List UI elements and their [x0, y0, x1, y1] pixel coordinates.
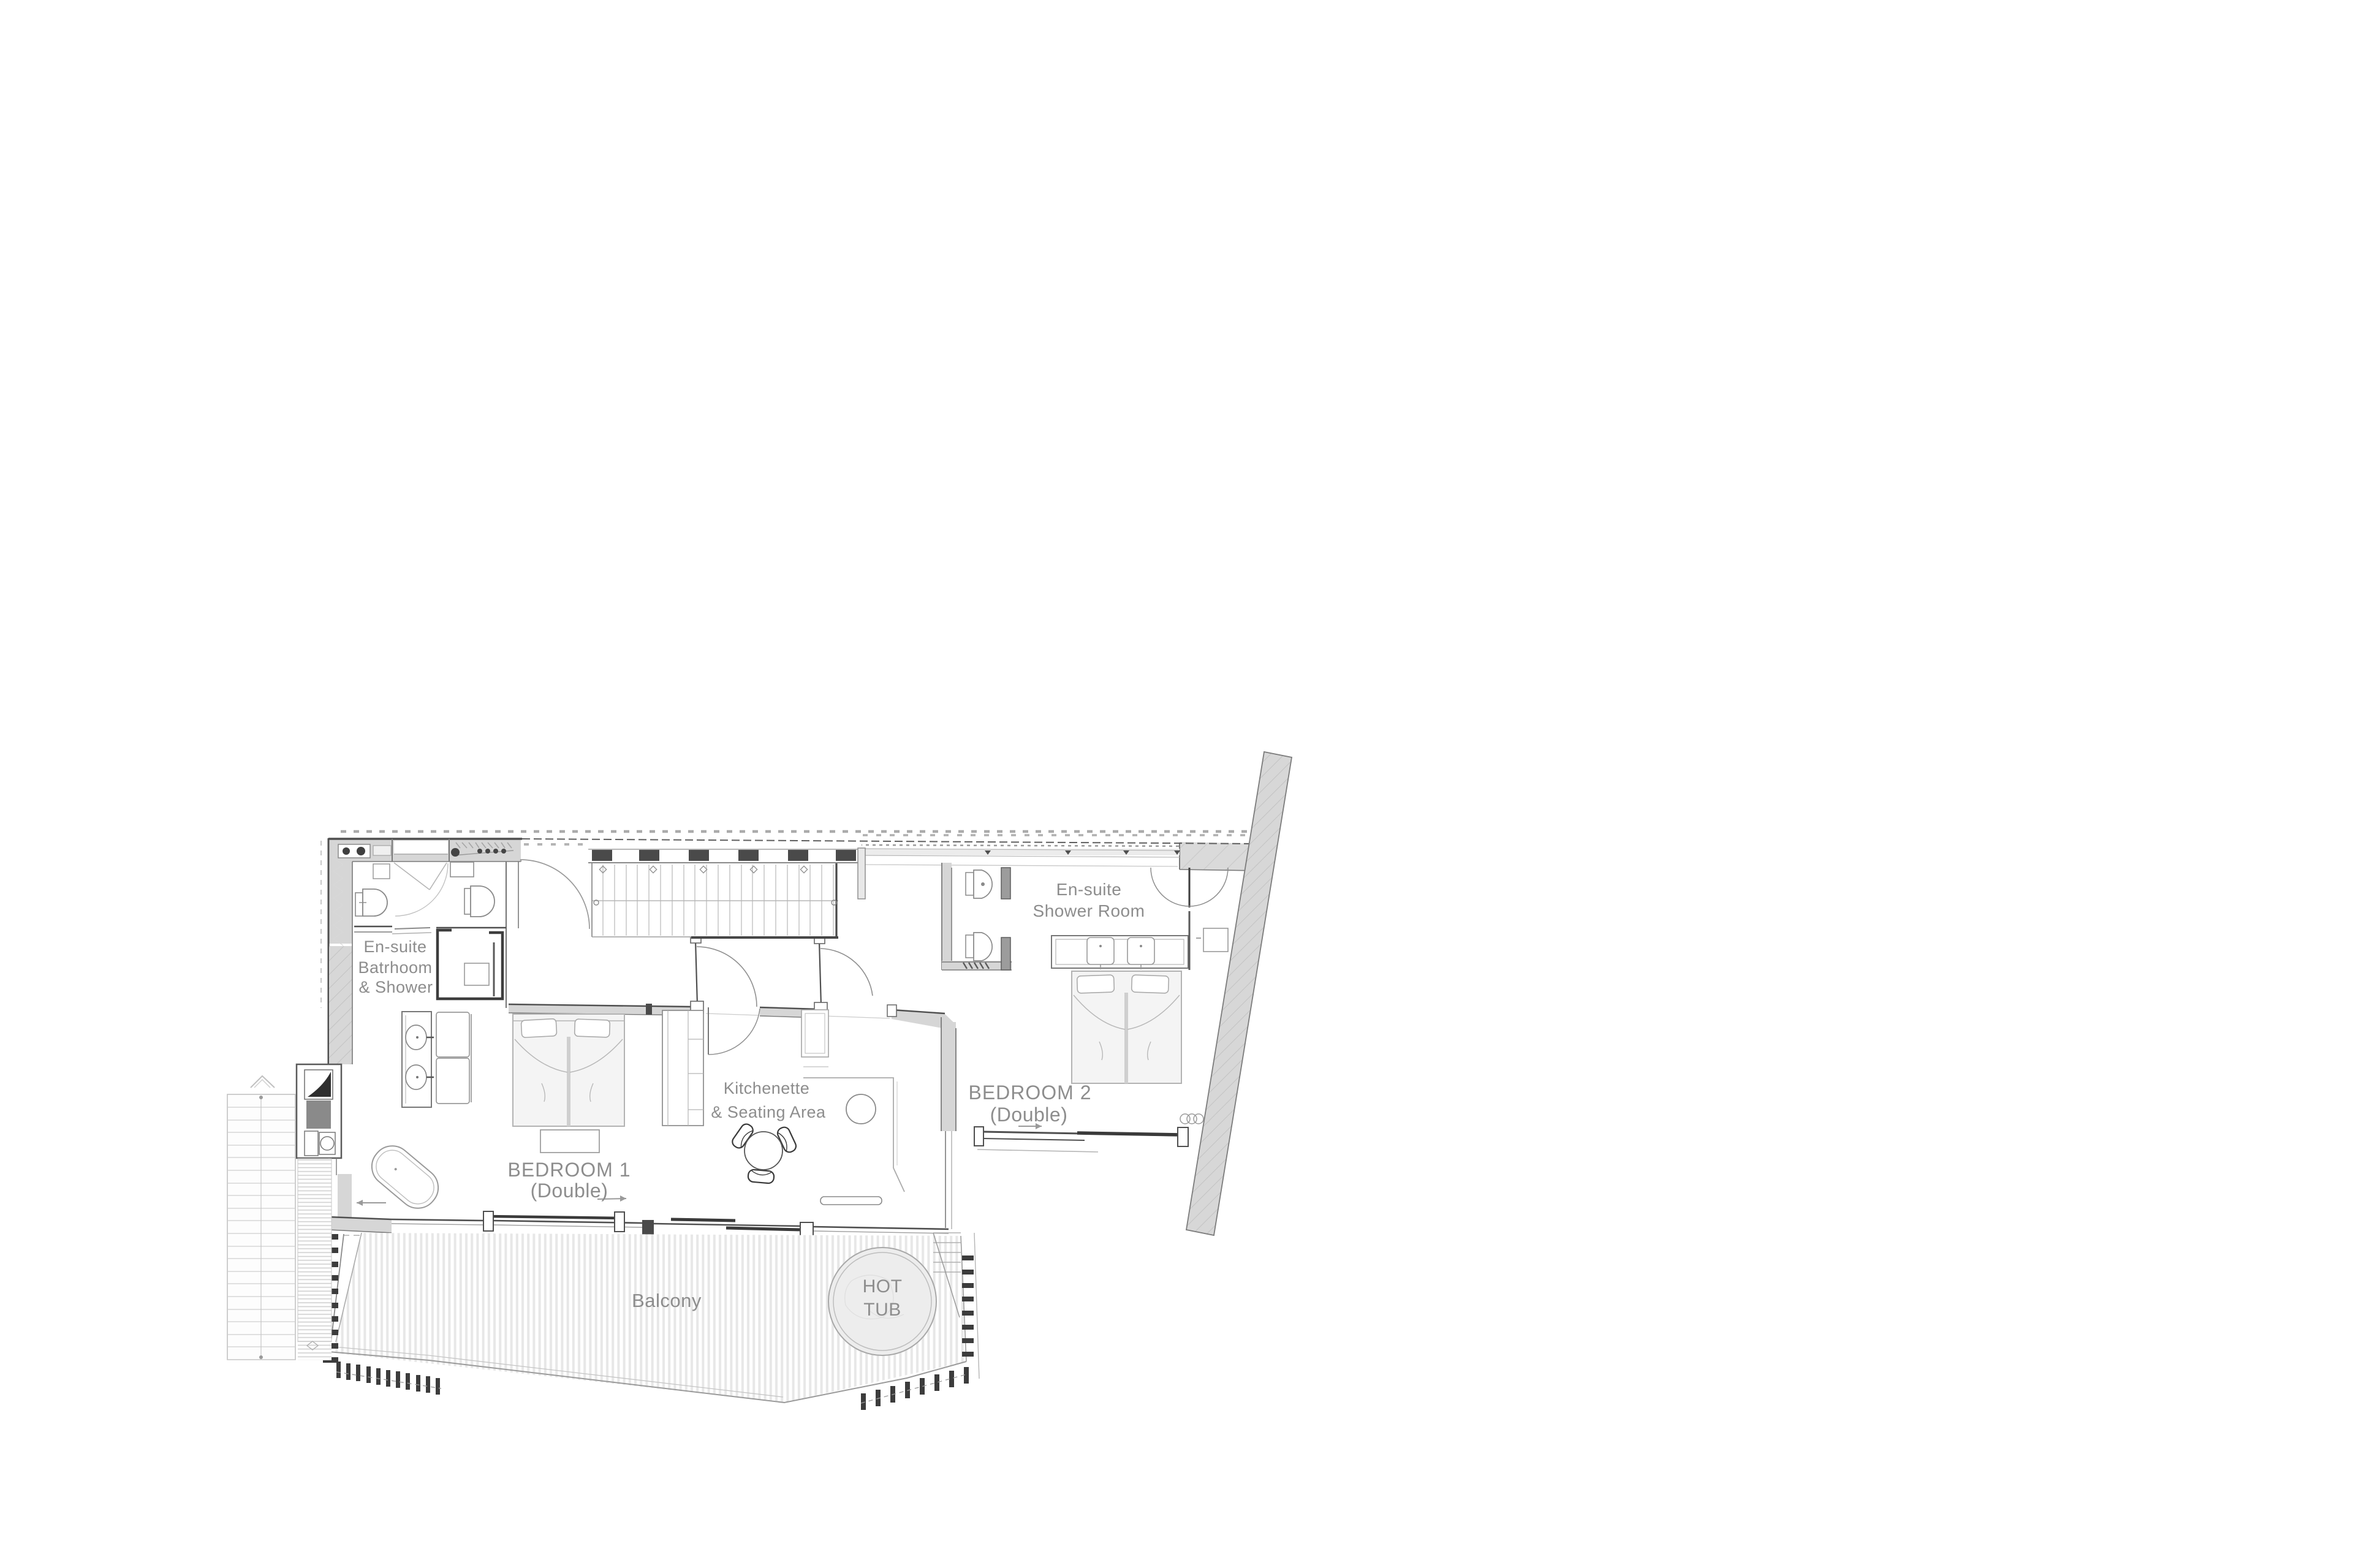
svg-text:& Seating Area: & Seating Area: [711, 1103, 826, 1121]
svg-text:HOT: HOT: [863, 1276, 903, 1297]
svg-text:Kitchenette: Kitchenette: [724, 1079, 810, 1097]
svg-text:Balcony: Balcony: [632, 1290, 702, 1311]
svg-text:(Double): (Double): [531, 1180, 608, 1202]
svg-text:En-suite: En-suite: [363, 937, 426, 956]
svg-text:Batrhoom: Batrhoom: [358, 958, 432, 977]
svg-text:& Shower: & Shower: [358, 978, 433, 996]
svg-text:(Double): (Double): [990, 1104, 1068, 1126]
svg-text:En-suite: En-suite: [1056, 880, 1122, 899]
svg-text:BEDROOM 2: BEDROOM 2: [968, 1081, 1091, 1104]
svg-text:Shower Room: Shower Room: [1033, 901, 1145, 920]
svg-text:BEDROOM 1: BEDROOM 1: [507, 1159, 631, 1181]
svg-text:TUB: TUB: [863, 1300, 901, 1320]
